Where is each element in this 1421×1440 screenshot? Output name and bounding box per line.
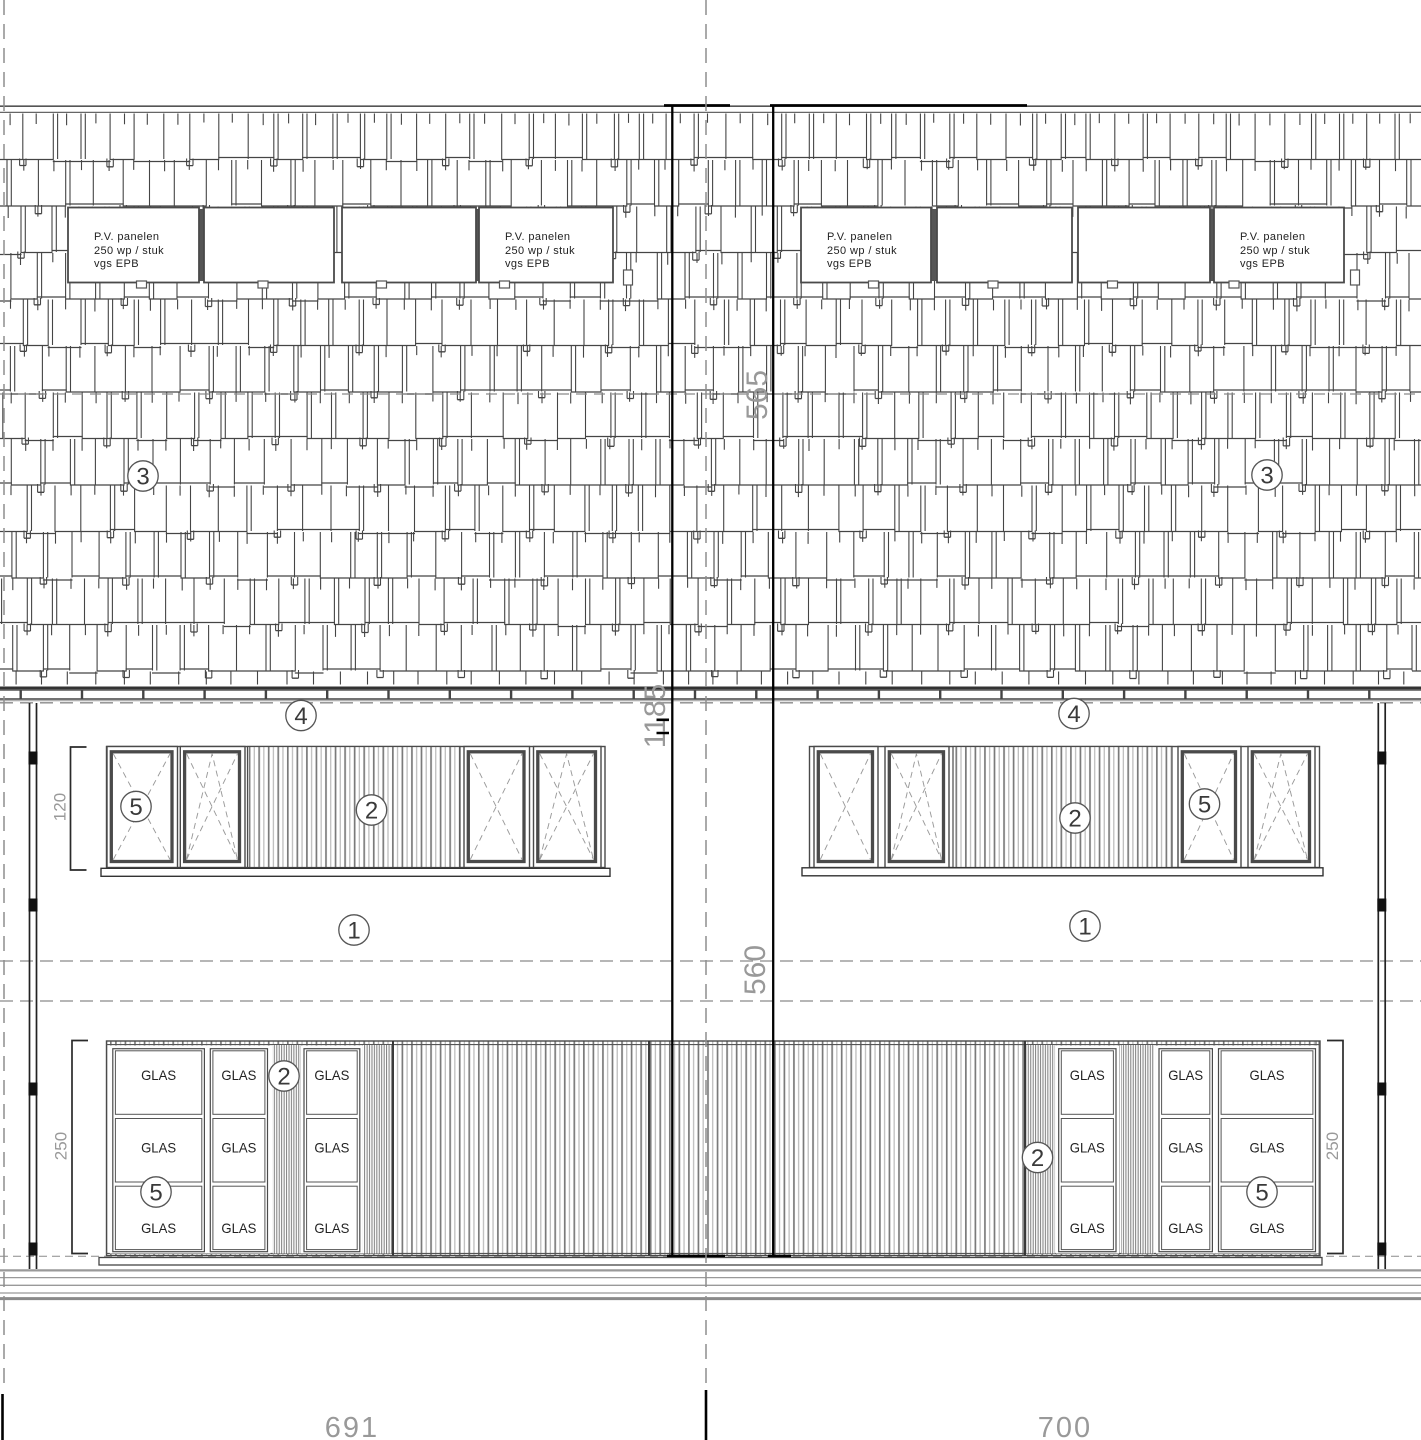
svg-text:GLAS: GLAS: [314, 1220, 349, 1236]
svg-text:GLAS: GLAS: [314, 1067, 349, 1083]
svg-text:2: 2: [277, 1064, 290, 1091]
svg-text:GLAS: GLAS: [1070, 1067, 1105, 1083]
svg-text:GLAS: GLAS: [1070, 1140, 1105, 1156]
svg-text:250: 250: [1323, 1132, 1342, 1160]
svg-text:5: 5: [149, 1180, 162, 1207]
svg-text:P.V. panelen: P.V. panelen: [827, 231, 892, 243]
svg-text:4: 4: [1067, 701, 1080, 728]
svg-text:250 wp / stuk: 250 wp / stuk: [1240, 245, 1310, 257]
svg-text:GLAS: GLAS: [141, 1140, 176, 1156]
svg-text:GLAS: GLAS: [221, 1140, 256, 1156]
svg-text:GLAS: GLAS: [1250, 1067, 1285, 1083]
svg-text:GLAS: GLAS: [1250, 1220, 1285, 1236]
svg-text:GLAS: GLAS: [1168, 1220, 1203, 1236]
svg-text:2: 2: [1031, 1145, 1044, 1172]
svg-text:2: 2: [1068, 806, 1081, 833]
svg-text:P.V. panelen: P.V. panelen: [1240, 231, 1305, 243]
svg-text:vgs EPB: vgs EPB: [827, 258, 872, 270]
svg-text:691: 691: [325, 1412, 379, 1440]
svg-text:250 wp / stuk: 250 wp / stuk: [94, 245, 164, 257]
svg-text:1: 1: [1078, 914, 1091, 941]
svg-text:GLAS: GLAS: [1168, 1067, 1203, 1083]
svg-text:565: 565: [741, 370, 774, 420]
svg-text:3: 3: [136, 464, 149, 491]
svg-text:vgs EPB: vgs EPB: [1240, 258, 1285, 270]
svg-text:GLAS: GLAS: [1168, 1140, 1203, 1156]
svg-text:5: 5: [1255, 1180, 1268, 1207]
svg-text:2: 2: [365, 798, 378, 825]
svg-text:GLAS: GLAS: [314, 1140, 349, 1156]
svg-text:P.V. panelen: P.V. panelen: [94, 231, 159, 243]
svg-text:GLAS: GLAS: [221, 1067, 256, 1083]
svg-text:120: 120: [51, 793, 70, 821]
svg-text:GLAS: GLAS: [141, 1067, 176, 1083]
svg-text:5: 5: [129, 794, 142, 821]
svg-text:250: 250: [52, 1132, 71, 1160]
svg-text:700: 700: [1038, 1412, 1092, 1440]
svg-text:GLAS: GLAS: [1070, 1220, 1105, 1236]
svg-text:560: 560: [739, 945, 772, 995]
svg-text:GLAS: GLAS: [221, 1220, 256, 1236]
svg-text:4: 4: [294, 703, 307, 730]
svg-text:1185: 1185: [639, 684, 672, 749]
svg-text:3: 3: [1260, 463, 1273, 490]
svg-text:GLAS: GLAS: [1250, 1140, 1285, 1156]
svg-text:250 wp / stuk: 250 wp / stuk: [505, 245, 575, 257]
svg-text:5: 5: [1198, 792, 1211, 819]
svg-text:250 wp / stuk: 250 wp / stuk: [827, 245, 897, 257]
svg-text:GLAS: GLAS: [141, 1220, 176, 1236]
svg-text:P.V. panelen: P.V. panelen: [505, 231, 570, 243]
svg-text:1: 1: [347, 918, 360, 945]
svg-text:vgs EPB: vgs EPB: [505, 258, 550, 270]
svg-text:vgs EPB: vgs EPB: [94, 258, 139, 270]
